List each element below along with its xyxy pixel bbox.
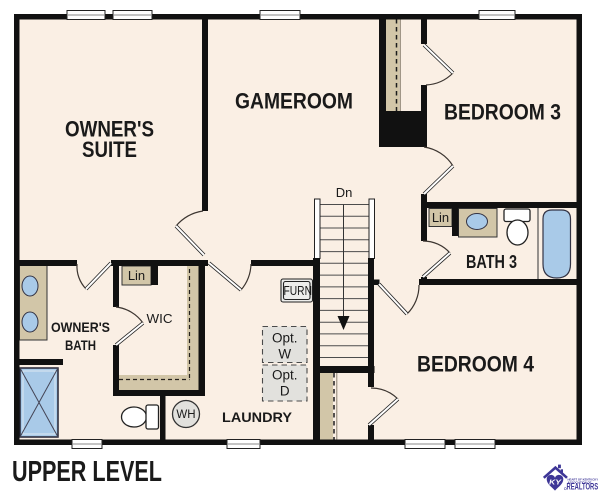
svg-text:Lin: Lin bbox=[432, 210, 449, 225]
svg-text:SUITE: SUITE bbox=[82, 137, 137, 162]
svg-text:BEDROOM 3: BEDROOM 3 bbox=[444, 100, 561, 125]
svg-text:UPPER LEVEL: UPPER LEVEL bbox=[12, 456, 162, 488]
svg-text:OWNER'S: OWNER'S bbox=[51, 319, 110, 335]
svg-text:W: W bbox=[278, 347, 291, 362]
svg-text:Opt.: Opt. bbox=[272, 331, 298, 346]
svg-text:BATH: BATH bbox=[65, 337, 96, 353]
svg-text:Opt.: Opt. bbox=[272, 368, 298, 383]
svg-text:LAUNDRY: LAUNDRY bbox=[222, 409, 293, 425]
svg-text:Lin: Lin bbox=[128, 268, 145, 283]
svg-text:WH: WH bbox=[176, 409, 195, 421]
svg-text:Dn: Dn bbox=[336, 185, 353, 200]
svg-text:KY: KY bbox=[549, 478, 562, 487]
svg-text:GAMEROOM: GAMEROOM bbox=[235, 89, 353, 114]
svg-text:FURN: FURN bbox=[284, 283, 313, 298]
svg-text:D: D bbox=[280, 384, 290, 399]
svg-text:BATH 3: BATH 3 bbox=[466, 252, 517, 272]
svg-text:WIC: WIC bbox=[147, 311, 173, 326]
svg-text:BEDROOM 4: BEDROOM 4 bbox=[417, 352, 535, 377]
svg-text:REALTORS: REALTORS bbox=[567, 482, 599, 492]
